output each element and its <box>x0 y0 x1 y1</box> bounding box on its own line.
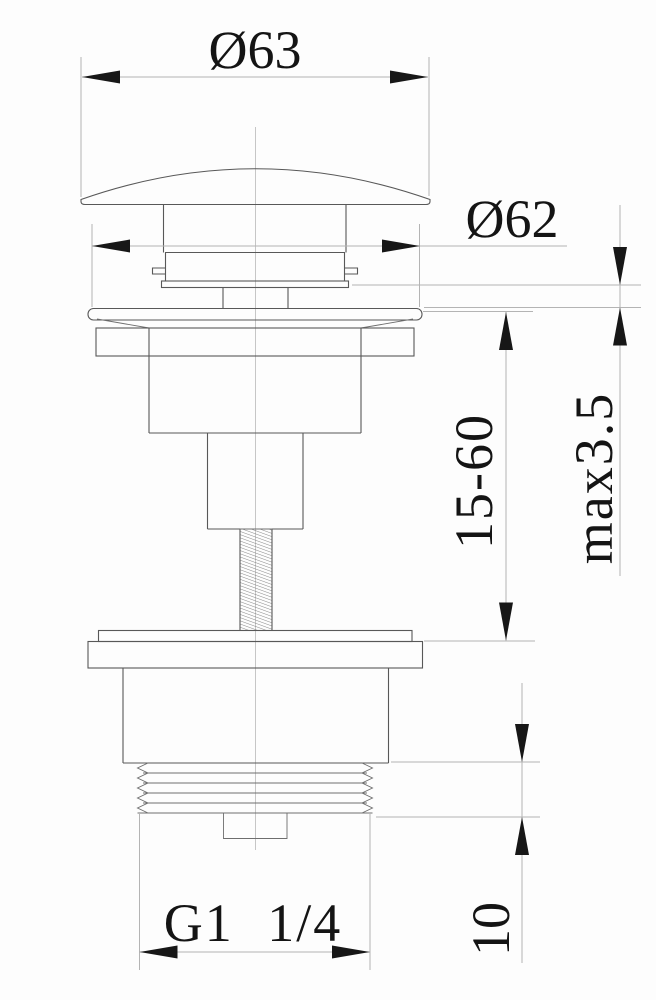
arrow-up-icon <box>515 817 529 855</box>
threaded-rod <box>240 529 272 631</box>
arrow-up-icon <box>499 312 513 350</box>
arrow-right-icon <box>390 71 428 84</box>
arrow-left-icon <box>82 71 120 84</box>
arrow-up-icon <box>613 308 627 346</box>
dim-label-height-range: 15-60 <box>444 413 504 549</box>
dim-label-thread-length: 10 <box>461 902 521 956</box>
dim-label-flange-max-thickness: max3.5 <box>564 392 624 564</box>
dim-height-range: 15-60 <box>423 312 535 642</box>
arrow-down-icon <box>613 247 627 285</box>
left-tab <box>153 268 166 274</box>
basin-waste-drawing: Ø63 Ø62 max3.5 15-60 10 <box>0 0 656 1000</box>
dim-thread-length: 10 <box>376 683 540 963</box>
dim-label-cap-diameter: Ø63 <box>209 20 302 80</box>
arrow-down-icon <box>499 603 513 641</box>
arrow-down-icon <box>515 724 529 762</box>
dim-label-thread-size: G1 1/4 <box>164 893 343 953</box>
dim-label-flange-diameter: Ø62 <box>466 189 559 249</box>
arrow-left-icon <box>92 240 130 253</box>
dim-thread-size: G1 1/4 <box>140 813 371 970</box>
technical-drawing-page: Ø63 Ø62 max3.5 15-60 10 <box>0 0 656 1000</box>
right-tab <box>345 268 358 274</box>
arrow-right-icon <box>382 240 420 253</box>
